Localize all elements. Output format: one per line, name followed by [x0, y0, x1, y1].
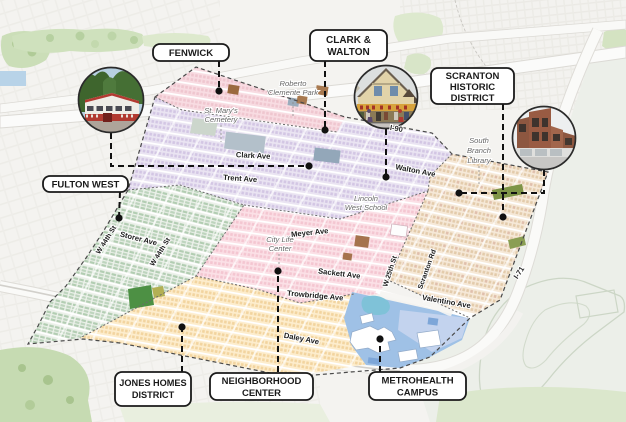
- svg-text:HISTORIC: HISTORIC: [450, 82, 495, 93]
- svg-text:NEIGHBORHOOD: NEIGHBORHOOD: [222, 376, 302, 387]
- svg-text:Cemetery: Cemetery: [205, 115, 239, 124]
- svg-text:DISTRICT: DISTRICT: [132, 390, 175, 400]
- svg-text:SCRANTON: SCRANTON: [446, 71, 500, 82]
- svg-text:City Life: City Life: [266, 235, 293, 244]
- svg-text:Library: Library: [467, 156, 491, 165]
- svg-text:South: South: [469, 136, 489, 145]
- svg-text:Roberto: Roberto: [279, 79, 306, 88]
- svg-text:Branch: Branch: [467, 146, 491, 155]
- svg-text:Clark Ave: Clark Ave: [236, 150, 271, 161]
- svg-text:Clemente Park: Clemente Park: [268, 88, 319, 97]
- svg-text:West School: West School: [345, 203, 388, 212]
- svg-text:DISTRICT: DISTRICT: [451, 93, 495, 104]
- svg-text:Lincoln: Lincoln: [354, 194, 378, 203]
- svg-text:FULTON WEST: FULTON WEST: [52, 180, 120, 191]
- svg-text:METROHEALTH: METROHEALTH: [381, 376, 453, 387]
- svg-text:CLARK &: CLARK &: [326, 35, 371, 46]
- svg-text:Center: Center: [269, 244, 292, 253]
- svg-text:FENWICK: FENWICK: [169, 48, 213, 59]
- svg-text:CAMPUS: CAMPUS: [397, 388, 438, 399]
- svg-text:WALTON: WALTON: [327, 47, 369, 58]
- svg-text:St. Mary's: St. Mary's: [204, 106, 238, 115]
- svg-text:JONES HOMES: JONES HOMES: [119, 378, 186, 388]
- svg-text:CENTER: CENTER: [242, 388, 281, 399]
